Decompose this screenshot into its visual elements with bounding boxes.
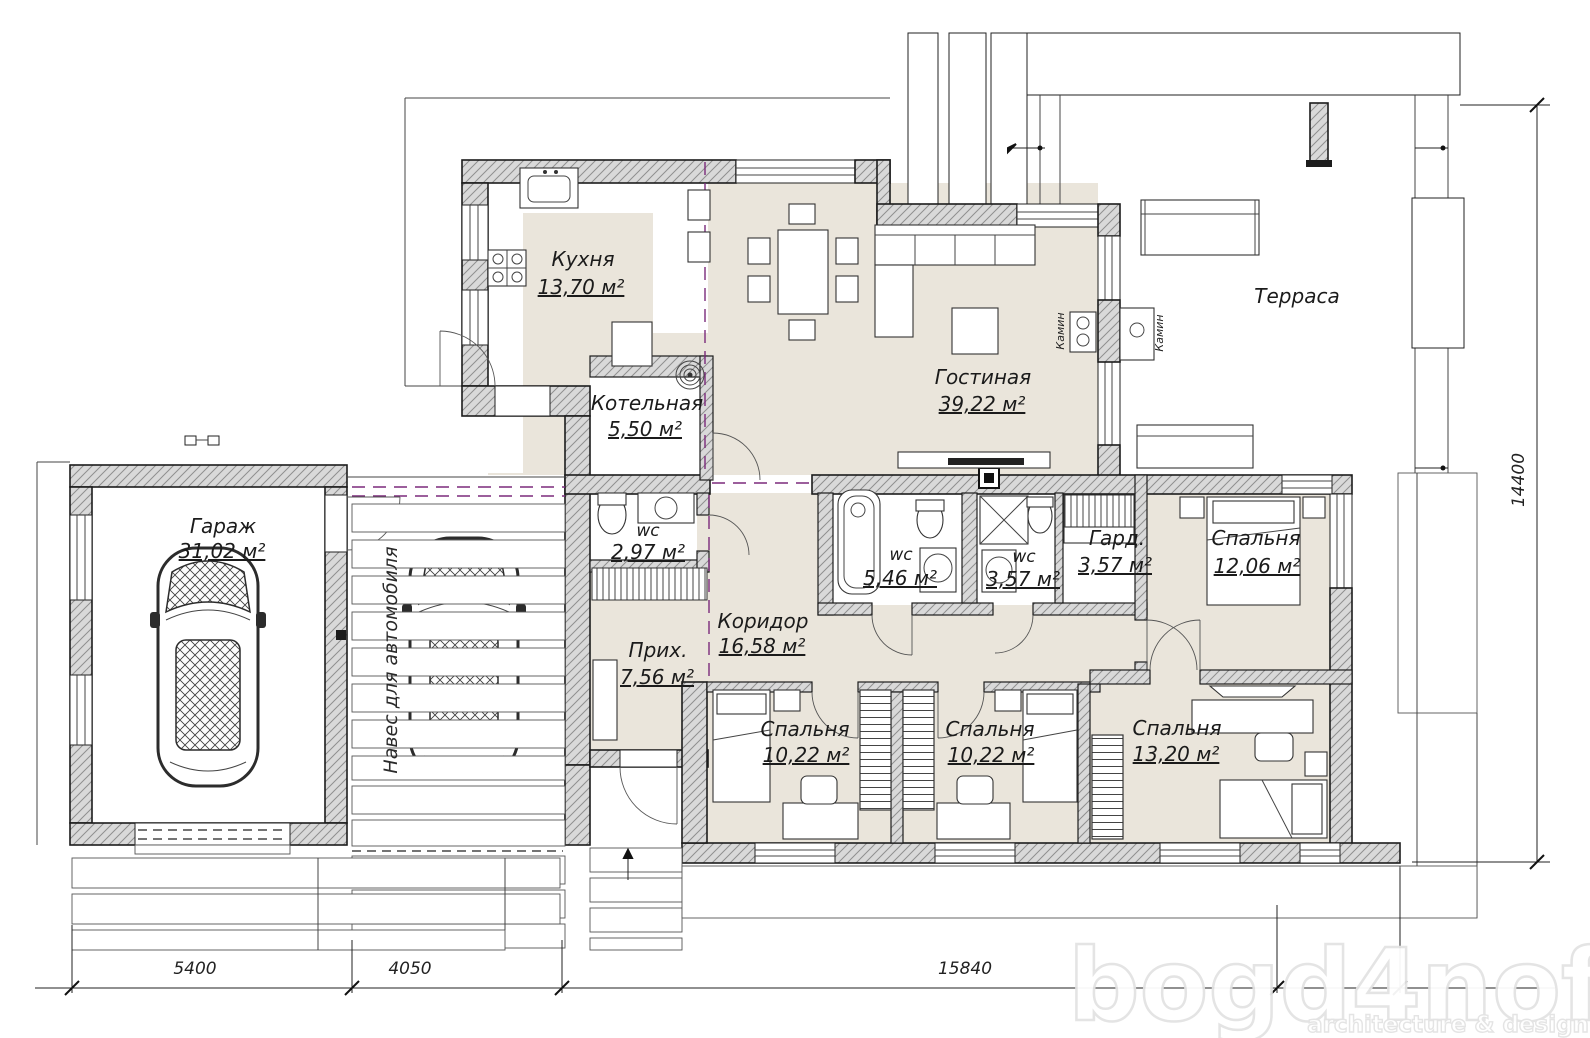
fireplace-box	[1120, 308, 1154, 360]
floor-porch	[590, 765, 682, 845]
watermark: bogd4noff architecture & design	[1068, 927, 1590, 1038]
dim-15840: 15840	[938, 959, 992, 979]
car-garage	[150, 548, 266, 786]
area-hall: 7,56 м²	[620, 665, 694, 689]
side-table	[1305, 752, 1327, 776]
fireplace	[1098, 300, 1120, 362]
kitchen-cabinet	[612, 322, 652, 366]
pergola-beam	[1027, 33, 1460, 95]
area-kitchen: 13,70 м²	[538, 275, 625, 299]
floor-plan-drawing: 5400 4050 15840 14400 Кухня 13,70 м² Гос…	[0, 0, 1590, 1038]
floor-plan-page: 5400 4050 15840 14400 Кухня 13,70 м² Гос…	[0, 0, 1590, 1038]
pergola-slat	[991, 33, 1027, 223]
wardrobe-rail	[1064, 495, 1134, 527]
label-bedroom-3: Спальня	[1133, 716, 1222, 740]
area-wc-bath: 5,46 м²	[863, 566, 937, 590]
area-wardrobe: 3,57 м²	[1078, 553, 1152, 577]
kitchen-stool	[688, 232, 710, 262]
label-wc-entry: wc	[636, 521, 660, 541]
label-bedroom-1: Спальня	[761, 717, 850, 741]
label-wc-shower: wc	[1012, 547, 1036, 567]
label-garage: Гараж	[190, 514, 256, 538]
area-bedroom-2: 10,22 м²	[948, 743, 1035, 767]
area-bedroom-3: 13,20 м²	[1133, 742, 1220, 766]
coffee-table	[952, 308, 998, 354]
area-bedroom-master: 12,06 м²	[1214, 554, 1301, 578]
label-carport: Навес для автомобиля	[380, 546, 402, 773]
label-terrace: Терраса	[1254, 284, 1339, 308]
area-bedroom-1: 10,22 м²	[763, 743, 850, 767]
label-fireplace-right: Камин	[1153, 314, 1166, 351]
terrace-column	[1310, 103, 1328, 165]
label-fireplace-left: Камин	[1054, 312, 1067, 349]
label-wardrobe: Гард.	[1089, 526, 1145, 550]
label-corridor: Коридор	[718, 609, 809, 633]
sofa-corner	[875, 265, 913, 337]
label-bedroom-master: Спальня	[1212, 526, 1301, 550]
nightstand	[1180, 497, 1204, 518]
label-boiler: Котельная	[591, 391, 703, 415]
label-bedroom-2: Спальня	[946, 717, 1035, 741]
nightstand	[1303, 497, 1325, 518]
terrace-planter	[1412, 198, 1464, 348]
area-garage: 31,02 м²	[179, 539, 266, 563]
dim-4050: 4050	[388, 959, 431, 979]
watermark-tagline: architecture & design	[1307, 1012, 1589, 1038]
closet	[903, 690, 934, 810]
desk	[937, 803, 1010, 839]
pergola-slat	[908, 33, 938, 223]
dining-table	[778, 230, 828, 314]
chair	[1255, 733, 1293, 761]
label-living: Гостиная	[935, 365, 1031, 389]
label-wc-bath: wc	[889, 545, 913, 565]
area-boiler: 5,50 м²	[608, 417, 682, 441]
hall-closet	[592, 568, 707, 600]
tv-stand	[1210, 686, 1295, 697]
porch-steps	[590, 848, 682, 950]
kitchen-stool	[688, 190, 710, 220]
area-wc-shower: 3,57 м²	[986, 567, 1060, 591]
chair	[801, 776, 837, 804]
nightstand	[995, 690, 1021, 711]
boiler-room	[676, 361, 704, 389]
desk	[783, 803, 858, 839]
closet	[1092, 735, 1123, 839]
tv	[948, 458, 1024, 465]
car-roof	[176, 640, 240, 750]
chair	[957, 776, 993, 804]
area-corridor: 16,58 м²	[719, 634, 806, 658]
terrace-bench	[1137, 425, 1253, 468]
pergola	[908, 33, 1460, 223]
area-wc-entry: 2,97 м²	[611, 540, 685, 564]
pergola-slat	[949, 33, 986, 223]
terrace-steps-side	[1398, 473, 1477, 713]
label-kitchen: Кухня	[552, 247, 615, 271]
hall-bench	[593, 660, 617, 740]
label-hall: Прих.	[629, 638, 688, 662]
terrace-bench	[1141, 200, 1259, 255]
dim-14400: 14400	[1509, 453, 1529, 507]
closet	[860, 690, 891, 810]
rear-deck	[682, 866, 1477, 918]
dim-5400: 5400	[173, 959, 216, 979]
driveway-rows	[72, 858, 560, 950]
nightstand	[774, 690, 800, 711]
area-living: 39,22 м²	[939, 392, 1026, 416]
